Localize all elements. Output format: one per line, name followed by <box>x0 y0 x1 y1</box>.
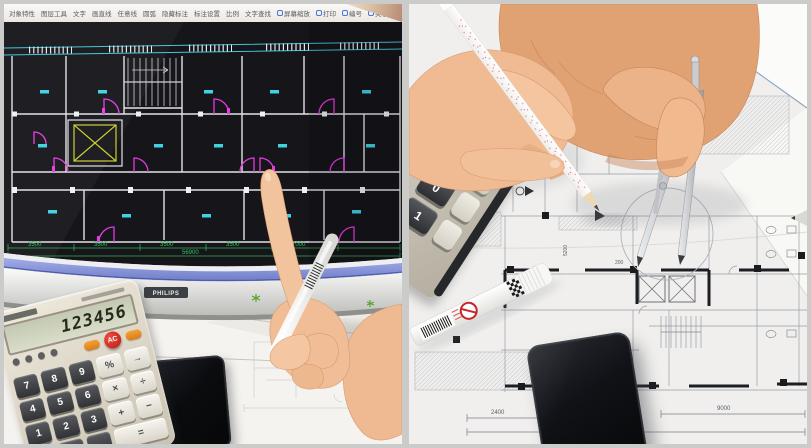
right-photo-blueprint-scene: 2400 9000 30700 200 5200 <box>409 4 807 444</box>
compass-point <box>678 255 685 265</box>
pointing-hand <box>261 169 402 440</box>
hands-overlay <box>409 4 807 444</box>
index-finger <box>261 169 308 308</box>
compass-screw <box>660 183 667 190</box>
thumbnail <box>550 160 560 168</box>
pencil-tip-shadow <box>581 214 629 226</box>
photo-collage: 3500 3500 3500 3500 7000 56900 <box>0 0 811 448</box>
pointing-hand-overlay <box>4 4 402 444</box>
left-photo-monitor-scene: 3500 3500 3500 3500 7000 56900 <box>4 4 402 444</box>
